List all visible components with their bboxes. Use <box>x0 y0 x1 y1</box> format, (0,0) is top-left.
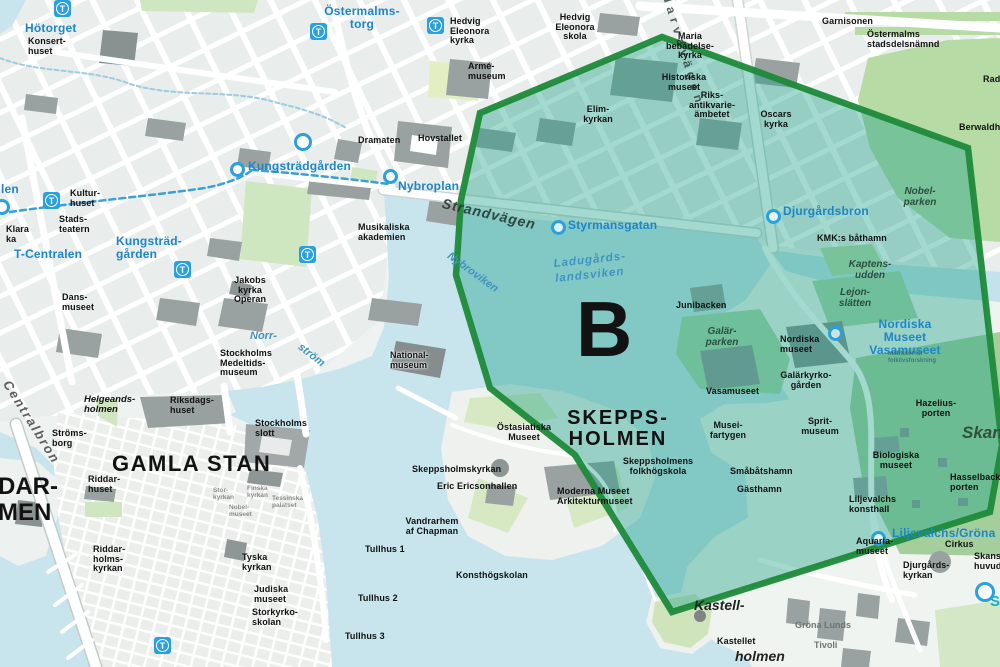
map-label: Armé- museum <box>468 62 506 81</box>
map-label: Elim- kyrkan <box>583 105 613 124</box>
map-label: Kaptens- udden <box>849 260 892 281</box>
metro-icon-letter: T <box>60 4 66 14</box>
map-label: Ströms- borg <box>52 429 87 448</box>
map-label: Gästhamn <box>737 485 782 495</box>
map-label: Eric Ericsonhallen <box>437 482 517 492</box>
map-label: Riddar- huset <box>88 475 120 494</box>
map-label: Skansen <box>962 424 1000 442</box>
map-label: Helgeands- holmen <box>84 395 135 415</box>
map-label: Sprit- museum <box>801 417 839 436</box>
map-label: Konsthögskolan <box>456 571 528 581</box>
map-label: SKEPPS- HOLMEN <box>567 408 669 450</box>
map-label: Moderna Museet Arkitekturmuseet <box>557 487 633 506</box>
map-label: Hötorget <box>25 22 77 35</box>
metro-icon: T <box>174 261 191 278</box>
map-label: Liljevalchs/Gröna <box>892 527 995 540</box>
label-layer: TTTTTTTHötorgetKonsert- husetÖstermalms-… <box>0 0 1000 667</box>
map-label: National- museum <box>390 351 429 370</box>
metro-icon-letter: T <box>160 641 166 651</box>
map-label: Tivoli <box>814 641 837 650</box>
map-label: Stor- kyrkan <box>213 487 234 501</box>
map-label: Konsert- huset <box>28 37 66 56</box>
map-label: Skansens huvudentré <box>974 552 1000 571</box>
map-label: Skeppsholmens folkhögskola <box>623 457 693 476</box>
metro-icon: T <box>54 0 71 17</box>
metro-icon: T <box>154 637 171 654</box>
map-label: Kultur- huset <box>70 189 100 208</box>
map-label: Hovstallet <box>418 134 462 144</box>
map-label: Norr- <box>250 330 277 342</box>
map-label: Hasselbacks- porten <box>950 473 1000 492</box>
map-label: Hazelius- porten <box>916 399 956 418</box>
map-label: Nobel- parken <box>904 187 937 208</box>
map-label: Cirkus <box>945 540 974 550</box>
metro-icon-letter: T <box>305 250 311 260</box>
station-circle-icon <box>766 209 781 224</box>
map-label: Aquaria- museet <box>856 537 893 556</box>
map-label: DAR- MEN <box>0 474 58 526</box>
station-circle-icon <box>230 162 245 177</box>
map-label: len <box>1 183 19 196</box>
map-label: GAMLA STAN <box>112 452 271 475</box>
metro-icon: T <box>427 17 444 34</box>
map-label: Nybroviken <box>445 250 501 295</box>
map-label: Nordiska museet <box>780 335 819 354</box>
map-label: Finska kyrkan <box>247 485 268 499</box>
map-label: Djurgårds- kyrkan <box>903 561 950 580</box>
map-label: Gröna Lunds <box>795 621 851 630</box>
map-label: Tessinska palatset <box>272 495 303 509</box>
map-label: Galärkyrko- gården <box>780 371 831 390</box>
map-label: Storkyrko- skolan <box>252 608 298 627</box>
map-label: Riksdags- huset <box>170 396 214 415</box>
stockholm-map: TTTTTTTHötorgetKonsert- husetÖstermalms-… <box>0 0 1000 667</box>
station-circle-icon <box>0 199 10 215</box>
map-label: Institutet för folklivsforskning <box>888 351 936 364</box>
station-circle-icon <box>294 133 312 151</box>
map-label: Östermalms stadsdelsnämnd <box>867 30 939 49</box>
map-label: Djurgårdsbron <box>783 205 869 218</box>
map-label: Musikaliska akademien <box>358 223 410 242</box>
map-label: Nobel- museet <box>229 504 252 518</box>
map-label: Östermalms- torg <box>324 5 400 31</box>
metro-icon-letter: T <box>433 21 439 31</box>
map-label: Garnisonen <box>822 17 873 27</box>
map-label: Junibacken <box>676 301 727 311</box>
map-label: Kungsträdgården <box>248 160 351 173</box>
map-label: T-Centralen <box>14 248 82 261</box>
map-label: Dramaten <box>358 136 400 146</box>
map-label: S <box>990 594 1000 610</box>
map-label: Riks- antikvarie- ämbetet <box>689 91 735 120</box>
map-label: Berwaldhallen <box>959 123 1000 133</box>
map-label: Radiohuset <box>983 75 1000 85</box>
map-label: Skeppsholmskyrkan <box>412 465 501 475</box>
map-label: ström <box>296 341 327 369</box>
map-label: Oscars kyrka <box>760 110 791 129</box>
map-label: Småbåtshamn <box>730 467 793 477</box>
map-label: Historiska museet <box>662 73 707 92</box>
map-label: Ladugårds- landsviken <box>553 249 628 286</box>
map-label: Kastellet <box>717 637 755 647</box>
map-label: Tyska kyrkan <box>242 553 272 572</box>
map-label: holmen <box>735 649 785 664</box>
map-label: Nybroplan <box>398 180 459 193</box>
metro-icon: T <box>43 192 60 209</box>
station-circle-icon <box>551 220 566 235</box>
map-label: Tullhus 2 <box>358 594 398 604</box>
map-label: Tullhus 3 <box>345 632 385 642</box>
map-label: Judiska museet <box>254 585 288 604</box>
map-label: Vandrarhem af Chapman <box>405 517 458 536</box>
map-label: Riddar- holms- kyrkan <box>93 545 125 574</box>
map-label: Kastell- <box>694 598 745 613</box>
map-label: Stockholms slott <box>255 419 307 438</box>
map-label: Klara ka <box>6 225 29 244</box>
metro-icon-letter: T <box>49 196 55 206</box>
map-label: Dans- museet <box>62 293 94 312</box>
metro-icon: T <box>299 246 316 263</box>
station-circle-icon <box>383 169 398 184</box>
map-label: Kungsträd- gården <box>116 235 182 261</box>
map-label: Styrmansgatan <box>568 219 657 232</box>
map-label: Galär- parken <box>706 327 739 348</box>
map-label: Liljevalchs konsthall <box>849 495 896 514</box>
map-label: Biologiska museet <box>873 451 920 470</box>
map-label: Stockholms Medeltids- museum <box>220 349 272 378</box>
metro-icon-letter: T <box>180 265 186 275</box>
map-label: Maria bebådelse- kyrka <box>666 32 714 61</box>
map-label: Stads- teatern <box>59 215 90 234</box>
map-label: Östasiatiska Museet <box>497 423 551 442</box>
map-label: B <box>576 296 632 362</box>
metro-icon-letter: T <box>316 27 322 37</box>
map-label: Hedvig Eleonora skola <box>555 13 594 42</box>
map-label: Tullhus 1 <box>365 545 405 555</box>
map-label: Hedvig Eleonora kyrka <box>450 17 489 46</box>
map-label: Centralbron <box>0 378 62 466</box>
map-label: Musei- fartygen <box>710 421 746 440</box>
station-circle-icon <box>828 326 843 341</box>
map-label: Lejon- slätten <box>839 288 871 309</box>
map-label: Jakobs kyrka Operan <box>234 276 266 305</box>
map-label: KMK:s båthamn <box>817 234 887 244</box>
map-label: Strandvägen <box>441 196 538 232</box>
map-label: Vasamuseet <box>706 387 759 397</box>
